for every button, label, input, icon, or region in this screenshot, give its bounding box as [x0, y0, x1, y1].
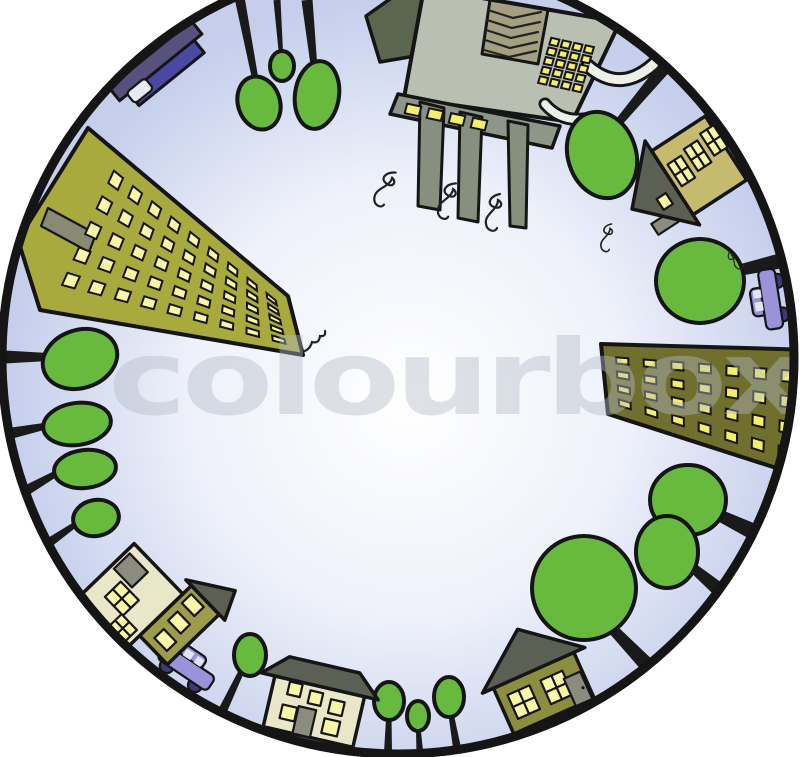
building-window — [552, 69, 562, 78]
building-window — [561, 40, 571, 49]
building-window — [471, 118, 488, 131]
building-window — [564, 72, 574, 81]
building-window — [573, 84, 583, 93]
tree-canopy — [656, 239, 744, 323]
building-window — [427, 108, 444, 121]
factory-chimney — [508, 121, 528, 228]
building-window — [575, 74, 585, 83]
illustration-stage: colourbox — [0, 0, 800, 757]
building-window — [538, 76, 548, 85]
tree-canopy — [636, 516, 698, 588]
tree-canopy — [270, 51, 294, 81]
building-window — [544, 57, 554, 66]
building-window — [570, 52, 580, 61]
car-window — [753, 290, 762, 299]
building-window — [549, 38, 559, 47]
watermark-text: colourbox — [108, 317, 800, 439]
tree-canopy — [532, 536, 636, 640]
building-window — [558, 50, 568, 59]
window — [308, 690, 324, 706]
building-window — [547, 47, 557, 56]
car-window — [754, 301, 763, 311]
tree-canopy — [434, 677, 464, 717]
building-window — [541, 67, 551, 76]
building-window — [584, 45, 594, 54]
tree-canopy — [407, 701, 429, 731]
building-window — [405, 104, 422, 117]
window — [287, 682, 303, 698]
building-window — [752, 438, 764, 452]
fisheye-city-illustration: colourbox — [0, 0, 800, 757]
building-window — [449, 113, 466, 126]
window — [328, 699, 345, 716]
building-window — [578, 65, 588, 74]
tree-canopy — [234, 634, 266, 676]
building-window — [581, 55, 591, 64]
window — [321, 718, 340, 736]
building-window — [115, 288, 131, 302]
building-window — [555, 60, 565, 69]
window — [280, 704, 298, 721]
building-window — [567, 62, 577, 71]
building-window — [561, 81, 571, 90]
building-window — [572, 43, 582, 52]
building-window — [550, 79, 560, 88]
